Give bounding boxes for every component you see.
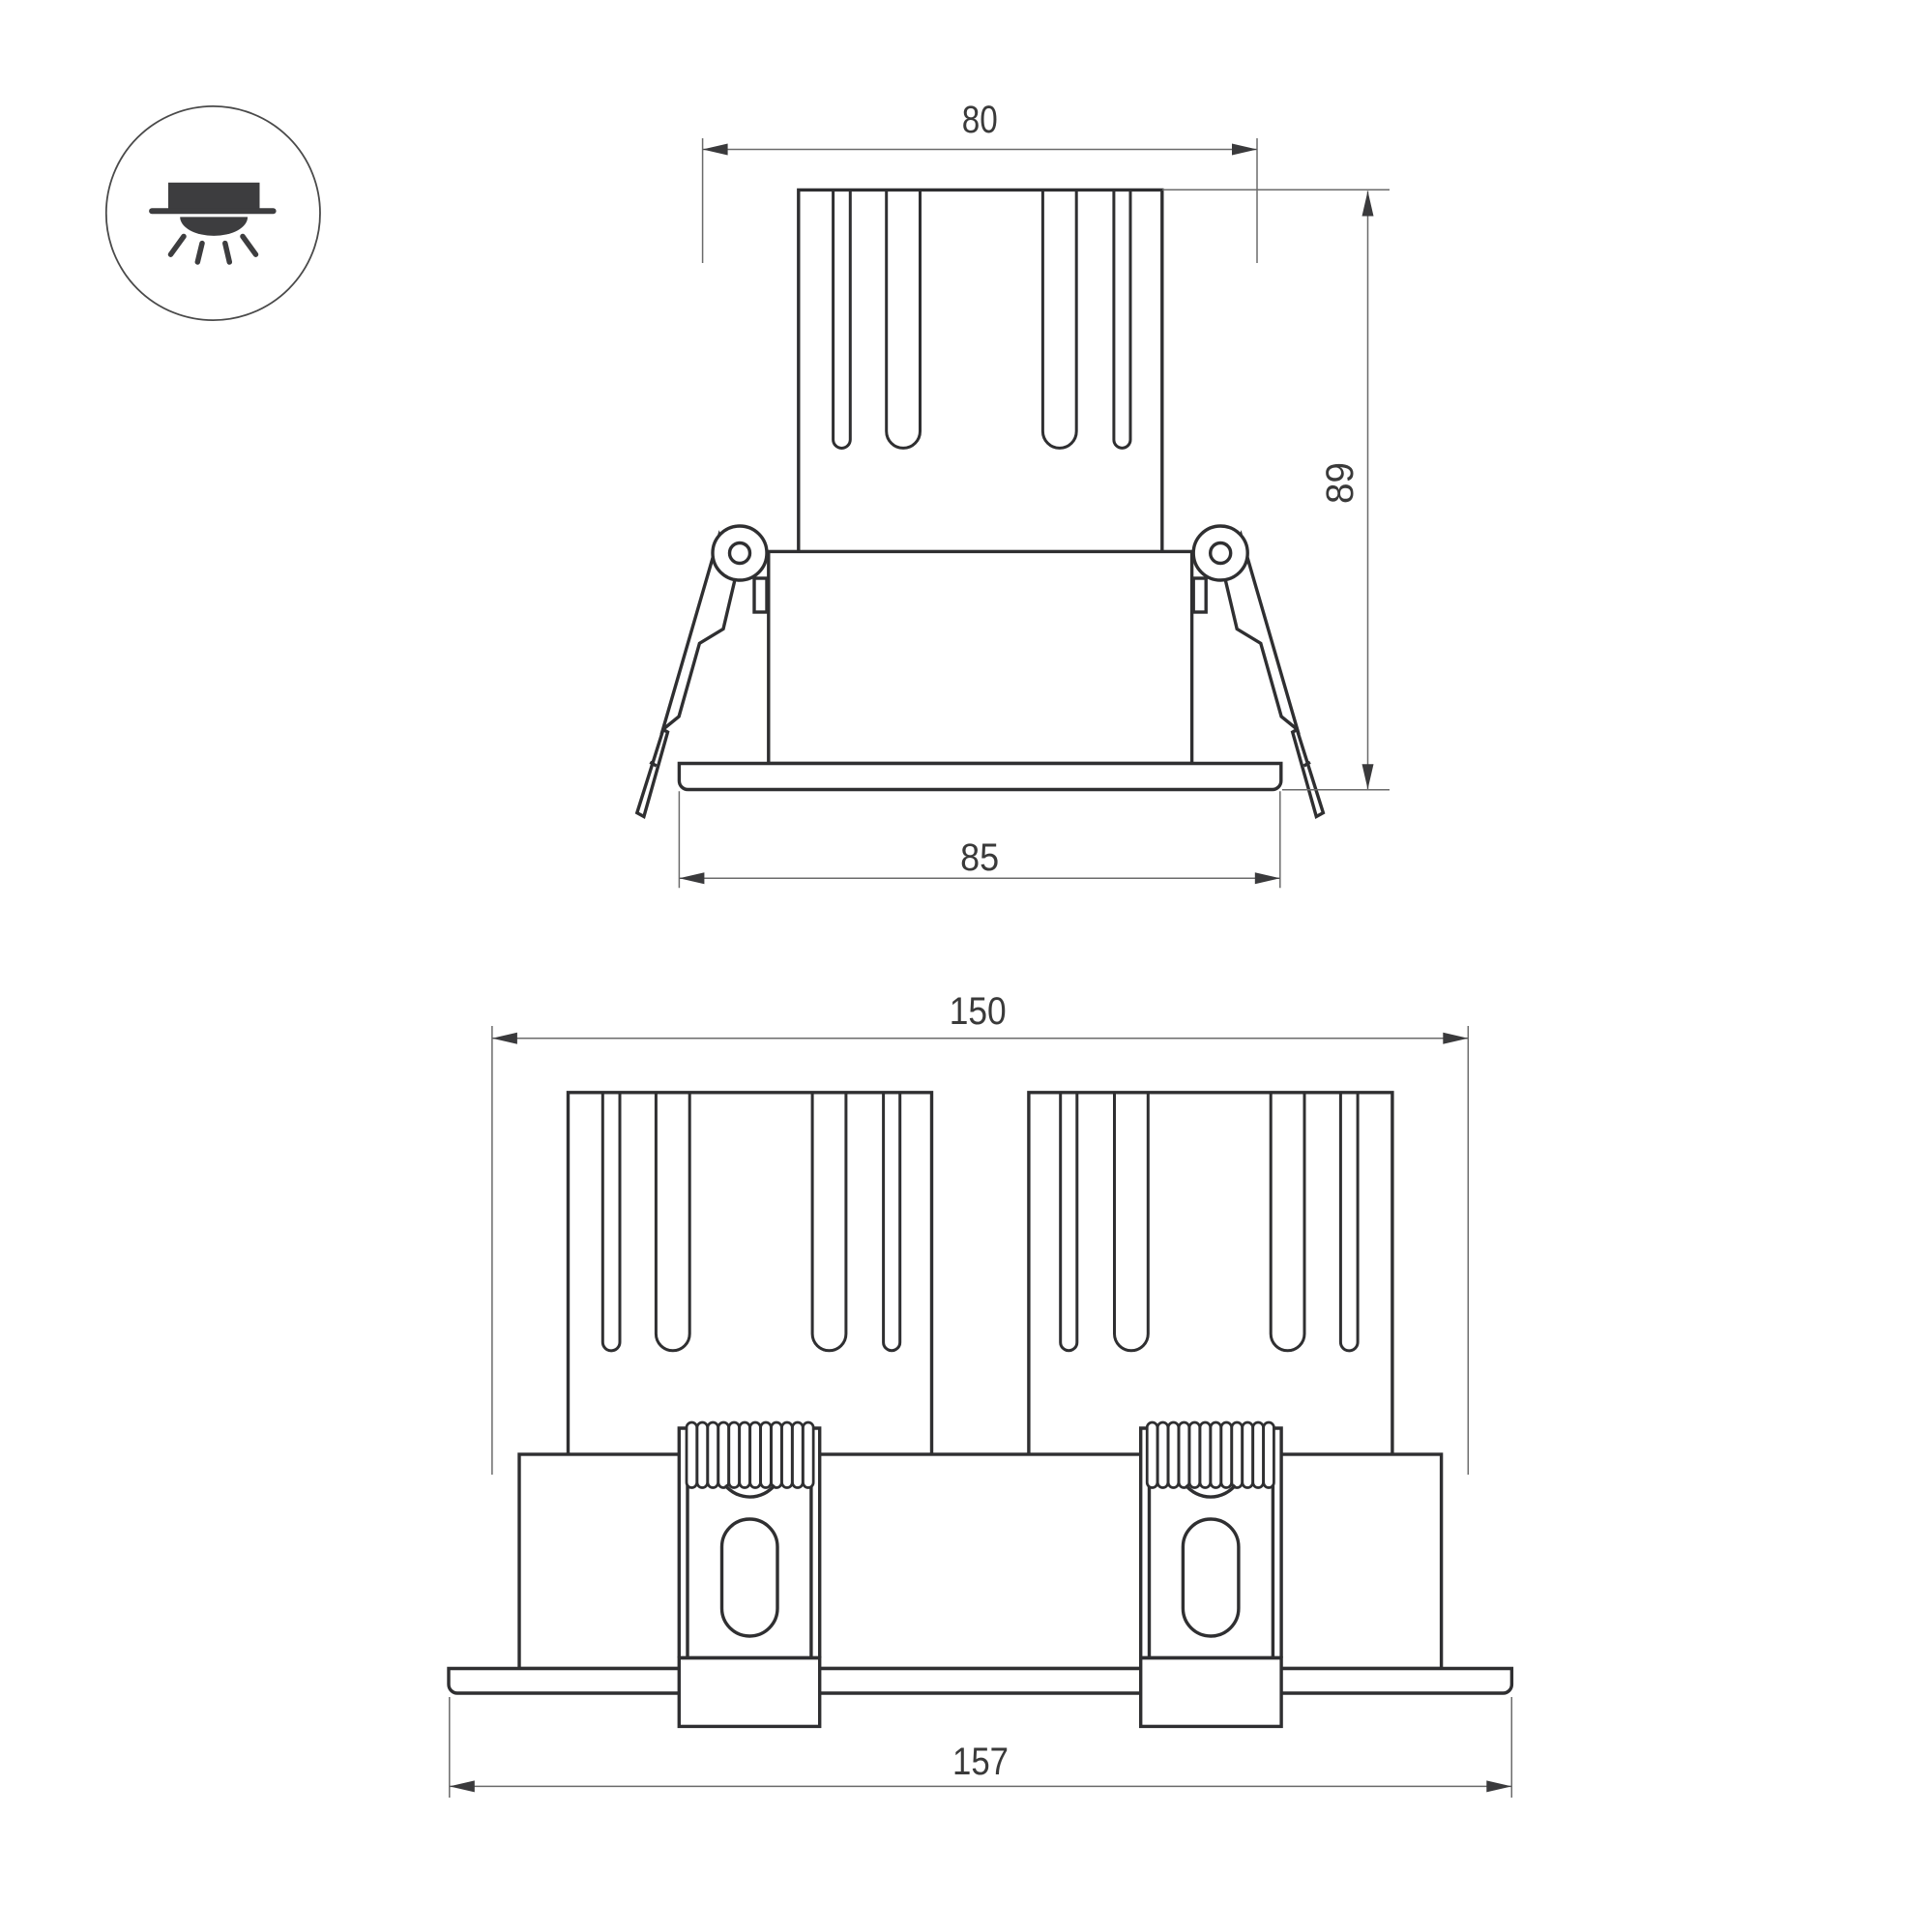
svg-text:85: 85 bbox=[960, 836, 999, 879]
svg-text:157: 157 bbox=[952, 1741, 1009, 1783]
svg-text:80: 80 bbox=[962, 99, 998, 141]
svg-text:89: 89 bbox=[1319, 462, 1361, 504]
svg-text:150: 150 bbox=[950, 990, 1007, 1033]
